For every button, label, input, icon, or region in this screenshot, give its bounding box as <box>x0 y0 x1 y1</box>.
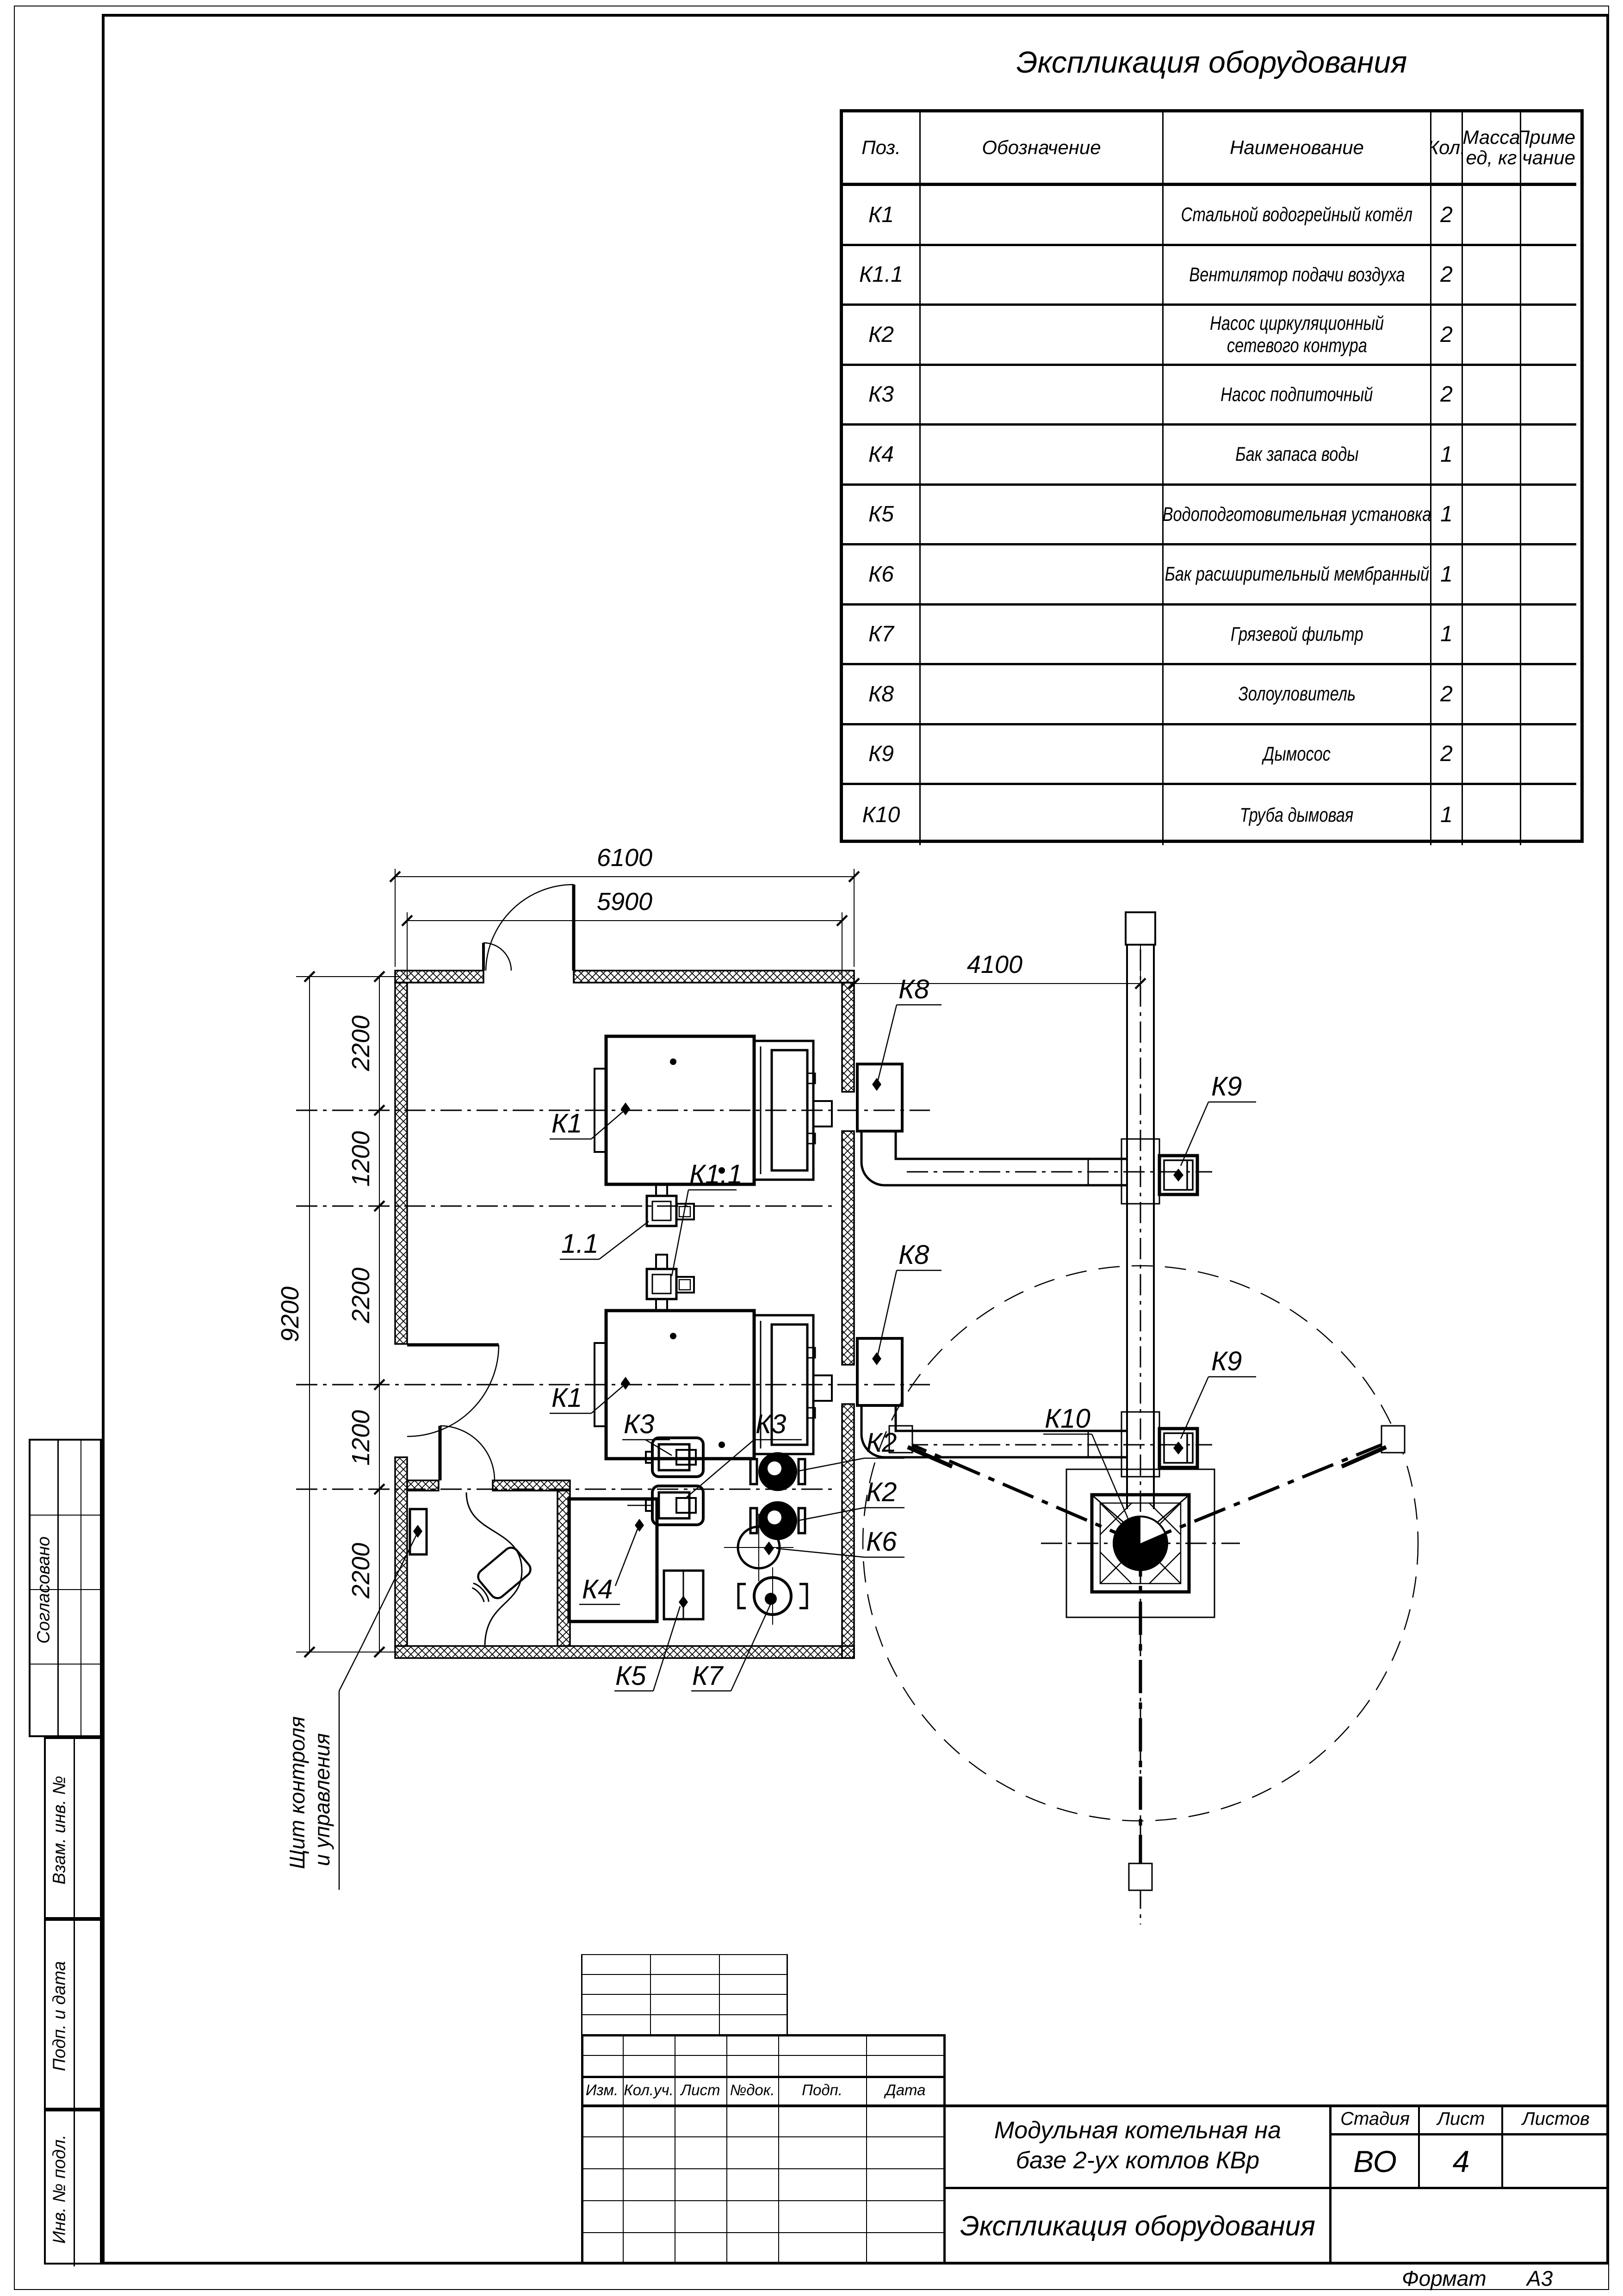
col-header-pos: Поз. <box>843 112 921 186</box>
table-row-note <box>1521 186 1576 246</box>
table-row-designation <box>921 665 1164 725</box>
stage-label: Стадия <box>1331 2104 1419 2133</box>
label-k4: К4 <box>582 1574 613 1604</box>
col-header-qty: Кол. <box>1431 112 1463 186</box>
drawing-sheet: 6100 5900 4100 9200 2200 1200 2200 1200 … <box>0 0 1623 2296</box>
table-row-mass <box>1463 186 1521 246</box>
table-row-name: Золоуловитель <box>1164 665 1431 725</box>
table-row-pos: К6 <box>843 545 921 606</box>
table-row-pos: К3 <box>843 366 921 426</box>
table-row-designation <box>921 426 1164 486</box>
table-row-qty: 1 <box>1431 785 1463 845</box>
stamp-agreed: Согласовано <box>29 1439 102 1737</box>
col-header-note-line2: чание <box>1522 148 1575 168</box>
label-k1-1: К1.1 <box>689 1159 743 1189</box>
table-row-mass <box>1463 306 1521 366</box>
table-row-note <box>1521 366 1576 426</box>
col-header-name: Наименование <box>1164 112 1431 186</box>
title-block: Изм. Кол.уч. Лист №док. Подп. Дата Модул… <box>581 1954 1609 2265</box>
table-row-name: Бак запаса воды <box>1164 426 1431 486</box>
table-row-mass <box>1463 366 1521 426</box>
label-k1-boiler1: К1 <box>551 1108 582 1139</box>
dim-seg5: 2200 <box>347 1543 375 1599</box>
label-k6: К6 <box>866 1527 897 1557</box>
table-row-qty: 2 <box>1431 725 1463 786</box>
smoke-exhauster-1 <box>1159 1156 1197 1194</box>
table-row-designation <box>921 545 1164 606</box>
table-row-name: Бак расширительный мембранный <box>1164 545 1431 606</box>
table-row-designation <box>921 486 1164 546</box>
table-row-mass <box>1463 785 1521 845</box>
rev-col-dok: №док. <box>726 2076 778 2104</box>
table-row-mass <box>1463 486 1521 546</box>
table-row-note <box>1521 486 1576 546</box>
table-row-mass <box>1463 545 1521 606</box>
table-row-pos: К10 <box>843 785 921 845</box>
project-title-line1: Модульная котельная на <box>994 2116 1281 2146</box>
pump-k3-2 <box>627 1486 703 1525</box>
dim-9200: 9200 <box>276 1287 304 1342</box>
label-fan-1-1: 1.1 <box>561 1229 599 1259</box>
table-row-mass <box>1463 725 1521 786</box>
table-row-qty: 1 <box>1431 486 1463 546</box>
label-k9-2: К9 <box>1211 1346 1242 1376</box>
stamp-agreed-text: Согласовано <box>34 1536 54 1644</box>
col-header-mass-line2: ед, кг <box>1466 148 1517 168</box>
table-row-qty: 2 <box>1431 246 1463 306</box>
table-row-qty: 1 <box>1431 545 1463 606</box>
table-row-mass <box>1463 606 1521 666</box>
dimension-texts: 6100 5900 4100 9200 2200 1200 2200 1200 … <box>276 844 1022 1599</box>
col-header-mass: Масса ед, кг <box>1463 112 1521 186</box>
label-k9-1: К9 <box>1211 1071 1242 1102</box>
stamp-inv-orig-text: Инв. № подл. <box>50 2135 70 2244</box>
table-row-name: Насос циркуляционный сетевого контура <box>1164 306 1431 366</box>
dim-seg2: 1200 <box>347 1131 375 1187</box>
rev-col-list: Лист <box>675 2076 726 2104</box>
smoke-exhauster-2 <box>1159 1429 1197 1467</box>
table-row-pos: К1 <box>843 186 921 246</box>
label-k7: К7 <box>692 1661 724 1691</box>
doc-title: Экспликация оборудования <box>945 2189 1331 2262</box>
table-row-pos: К8 <box>843 665 921 725</box>
col-header-designation: Обозначение <box>921 112 1164 186</box>
pump-k2-1 <box>750 1452 805 1491</box>
table-row-designation <box>921 725 1164 786</box>
stamp-replace-inv-text: Взам. инв. № <box>50 1776 70 1884</box>
table-row-note <box>1521 606 1576 666</box>
table-row-note <box>1521 785 1576 845</box>
water-treatment-k5 <box>664 1571 703 1619</box>
dim-seg4: 1200 <box>347 1410 375 1466</box>
table-row-note <box>1521 725 1576 786</box>
label-control-panel-line1: Щит контроля <box>285 1716 309 1869</box>
table-row-note <box>1521 545 1576 606</box>
table-row-qty: 2 <box>1431 306 1463 366</box>
label-k2-2: К2 <box>866 1477 897 1507</box>
dim-4100: 4100 <box>967 951 1022 978</box>
table-row-designation <box>921 246 1164 306</box>
table-row-note <box>1521 306 1576 366</box>
table-row-pos: К4 <box>843 426 921 486</box>
table-row-name: Водоподготовительная установка <box>1164 486 1431 546</box>
dim-seg1: 2200 <box>347 1015 375 1071</box>
table-row-note <box>1521 665 1576 725</box>
table-row-name: Вентилятор подачи воздуха <box>1164 246 1431 306</box>
dimensions <box>296 869 1146 1657</box>
table-row-mass <box>1463 426 1521 486</box>
table-row-qty: 2 <box>1431 186 1463 246</box>
dim-6100: 6100 <box>597 844 652 872</box>
project-title: Модульная котельная на базе 2-ух котлов … <box>945 2104 1331 2187</box>
table-row-name: Насос подпиточный <box>1164 366 1431 426</box>
table-row-mass <box>1463 665 1521 725</box>
table-row-pos: К9 <box>843 725 921 786</box>
table-row-note <box>1521 426 1576 486</box>
table-row-designation <box>921 785 1164 845</box>
stamp-inv-orig: Инв. № подл. <box>44 2110 102 2265</box>
label-k5: К5 <box>615 1661 646 1691</box>
table-row-name: Дымосос <box>1164 725 1431 786</box>
rev-col-koluch: Кол.уч. <box>623 2076 675 2104</box>
sheet-label: Лист <box>1419 2104 1503 2133</box>
table-row-qty: 1 <box>1431 426 1463 486</box>
table-row-qty: 1 <box>1431 606 1463 666</box>
dim-seg3: 2200 <box>347 1268 375 1324</box>
table-row-name: Грязевой фильтр <box>1164 606 1431 666</box>
format-value: А3 <box>1527 2266 1553 2291</box>
table-row-pos: К2 <box>843 306 921 366</box>
table-row-pos: К7 <box>843 606 921 666</box>
project-title-line2: базе 2-ух котлов КВр <box>1016 2146 1259 2176</box>
table-row-name: Стальной водогрейный котёл <box>1164 186 1431 246</box>
label-k1-boiler2: К1 <box>551 1383 582 1413</box>
table-row-designation <box>921 306 1164 366</box>
dim-5900: 5900 <box>597 888 652 916</box>
col-header-note-line1: Приме- <box>1521 127 1576 148</box>
col-header-mass-line1: Масса <box>1463 127 1520 148</box>
table-row-designation <box>921 186 1164 246</box>
table-row-qty: 2 <box>1431 665 1463 725</box>
stage-value: ВО <box>1331 2135 1419 2187</box>
label-k10: К10 <box>1045 1404 1090 1434</box>
air-fan-2 <box>647 1255 694 1311</box>
table-row-mass <box>1463 246 1521 306</box>
table-row-qty: 2 <box>1431 366 1463 426</box>
label-k2-1: К2 <box>866 1428 897 1458</box>
label-k8-2: К8 <box>898 1240 929 1270</box>
rev-col-podp: Подп. <box>778 2076 866 2104</box>
stamp-sign-date-text: Подп. и дата <box>50 1961 70 2071</box>
stamp-sign-date: Подп. и дата <box>44 1919 102 2110</box>
label-control-panel-line2: и управления <box>310 1733 334 1866</box>
table-row-designation <box>921 366 1164 426</box>
rev-col-data: Дата <box>866 2076 945 2104</box>
ash-catcher-1 <box>857 1064 902 1185</box>
table-row-pos: К5 <box>843 486 921 546</box>
equipment-table: Поз. Обозначение Наименование Кол. Масса… <box>840 109 1584 843</box>
label-k3-1: К3 <box>624 1409 654 1439</box>
label-k8-1: К8 <box>898 974 929 1004</box>
sink <box>466 1492 533 1645</box>
rev-col-izm: Изм. <box>581 2076 623 2104</box>
table-row-designation <box>921 606 1164 666</box>
col-header-note: Приме- чание <box>1521 112 1576 186</box>
table-row-pos: К1.1 <box>843 246 921 306</box>
format-label: Формат <box>1402 2266 1487 2291</box>
stamp-replace-inv: Взам. инв. № <box>44 1737 102 1919</box>
sheets-label: Листов <box>1503 2104 1609 2133</box>
sheet-value: 4 <box>1419 2135 1503 2187</box>
table-row-name: Труба дымовая <box>1164 785 1431 845</box>
mud-filter-k7 <box>738 1567 807 1625</box>
air-fan-1 <box>647 1184 694 1226</box>
table-row-note <box>1521 246 1576 306</box>
label-k3-2: К3 <box>756 1409 786 1439</box>
equipment-table-title: Экспликация оборудования <box>840 44 1584 80</box>
